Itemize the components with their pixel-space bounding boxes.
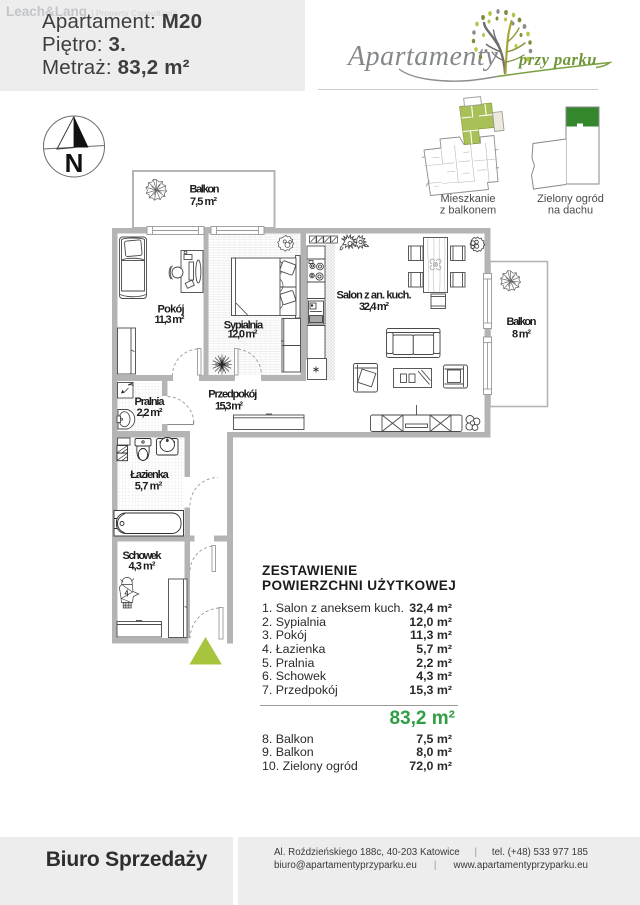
svg-text:Łazienka: Łazienka — [130, 469, 169, 481]
svg-text:4,3 m²: 4,3 m² — [129, 561, 156, 573]
svg-text:Mieszkanie: Mieszkanie — [440, 193, 495, 205]
svg-text:Przedpokój: Przedpokój — [208, 389, 257, 401]
svg-text:12,0 m²: 12,0 m² — [228, 329, 258, 341]
svg-text:11,3 m²: 11,3 m² — [155, 314, 185, 326]
svg-text:Balkon: Balkon — [190, 184, 220, 196]
svg-text:Balkon: Balkon — [507, 316, 537, 328]
svg-text:7,5 m²: 7,5 m² — [190, 196, 217, 208]
svg-text:5,7 m²: 5,7 m² — [135, 481, 163, 493]
svg-text:15,3 m²: 15,3 m² — [215, 401, 243, 413]
svg-text:Zielony ogród: Zielony ogród — [537, 193, 604, 205]
svg-text:N: N — [65, 148, 84, 178]
svg-text:z balkonem: z balkonem — [440, 205, 496, 217]
svg-text:8 m²: 8 m² — [512, 329, 531, 341]
svg-text:Salon z an. kuch.: Salon z an. kuch. — [337, 290, 412, 302]
svg-text:32,4 m²: 32,4 m² — [359, 301, 389, 313]
svg-text:2,2 m²: 2,2 m² — [137, 407, 163, 419]
svg-text:na dachu: na dachu — [548, 205, 593, 217]
